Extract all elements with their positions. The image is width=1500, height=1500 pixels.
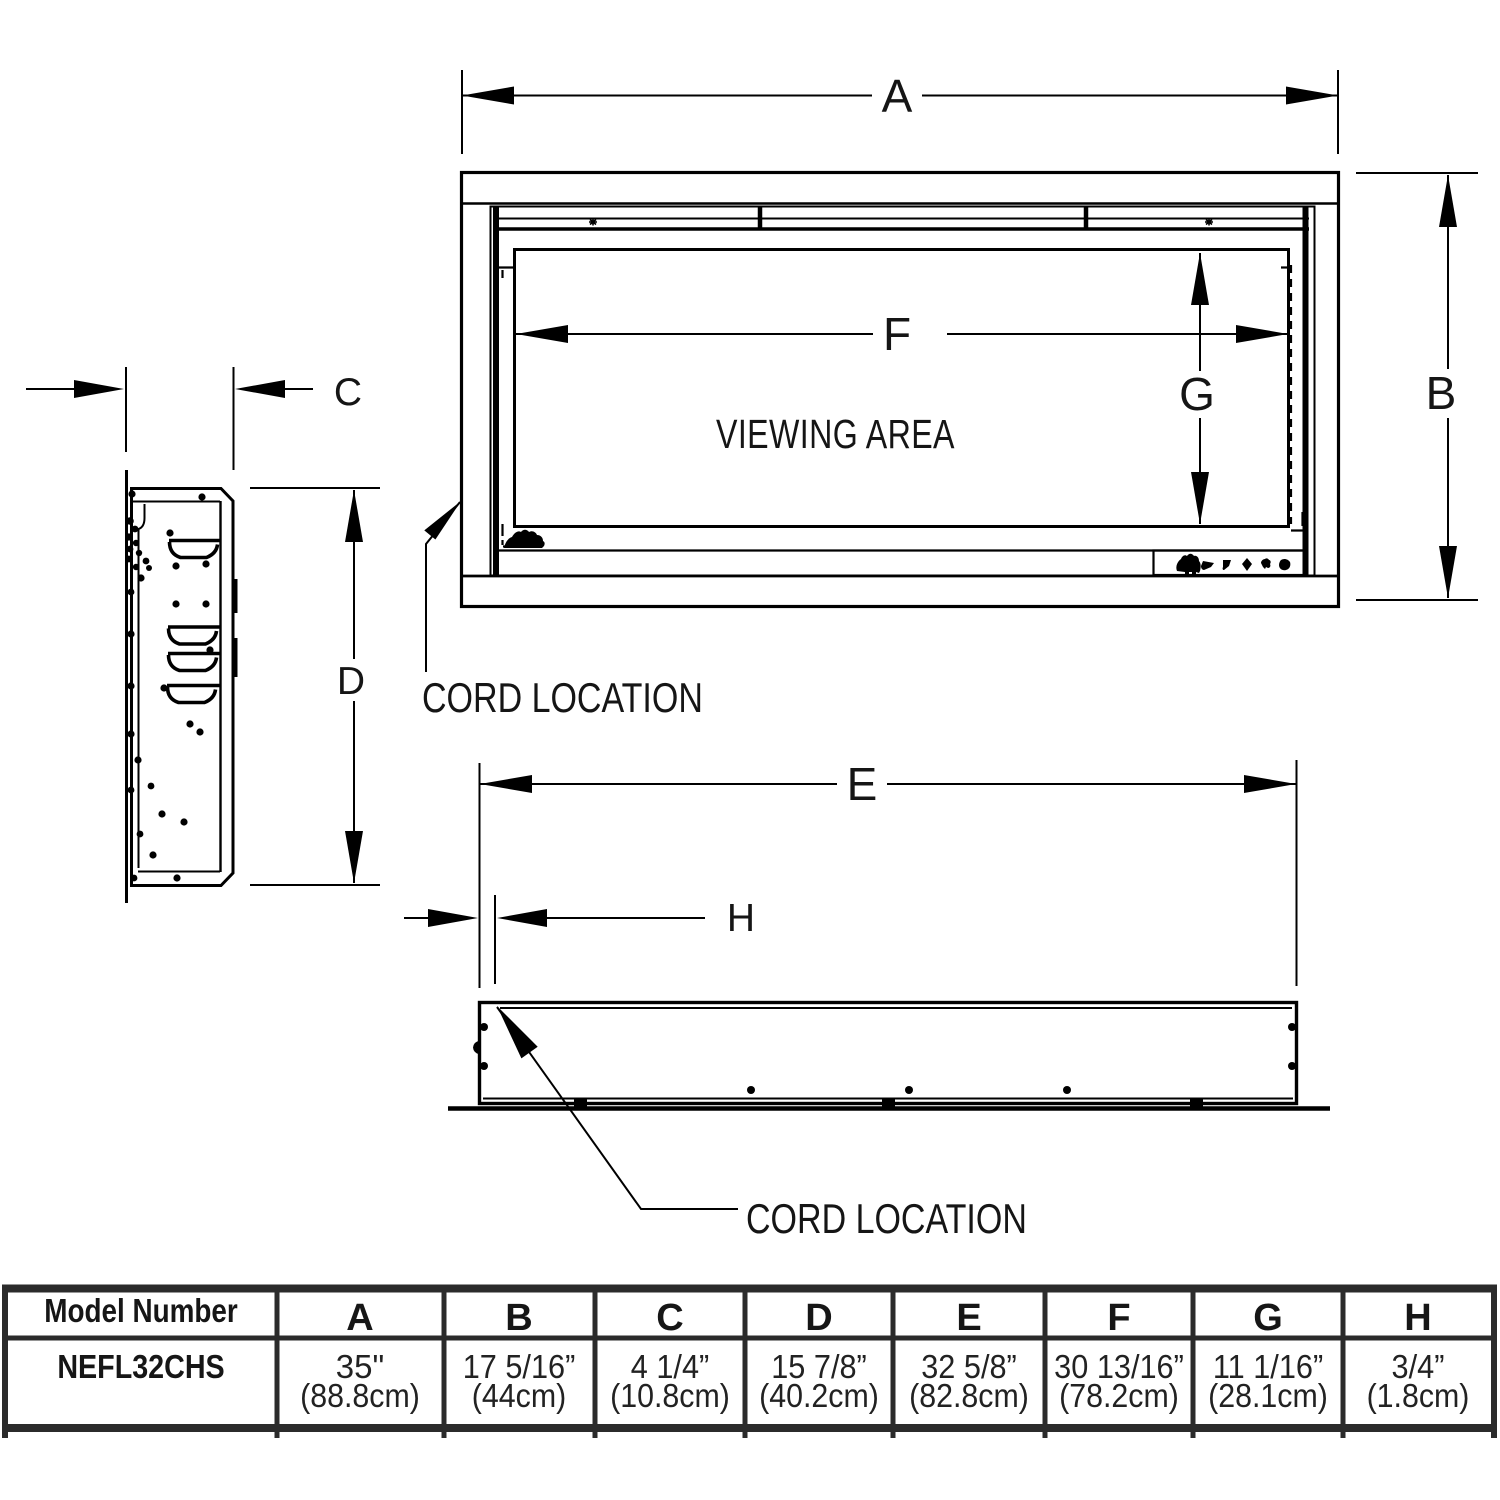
svg-text:(1.8cm): (1.8cm): [1367, 1377, 1470, 1414]
svg-text:C: C: [656, 1297, 683, 1339]
svg-text:E: E: [847, 758, 878, 810]
svg-text:A: A: [882, 70, 913, 122]
svg-text:H: H: [727, 897, 755, 940]
svg-text:B: B: [1426, 367, 1457, 419]
svg-text:(82.8cm): (82.8cm): [909, 1377, 1029, 1414]
svg-text:D: D: [337, 660, 365, 703]
svg-text:G: G: [1253, 1297, 1283, 1339]
svg-text:(40.2cm): (40.2cm): [759, 1377, 879, 1414]
svg-text:(44cm): (44cm): [472, 1377, 566, 1414]
svg-text:CORD LOCATION: CORD LOCATION: [746, 1196, 1027, 1243]
svg-text:(28.1cm): (28.1cm): [1208, 1377, 1328, 1414]
svg-text:(78.2cm): (78.2cm): [1059, 1377, 1179, 1414]
svg-text:D: D: [805, 1297, 832, 1339]
svg-text:F: F: [1107, 1297, 1130, 1339]
svg-text:(88.8cm): (88.8cm): [300, 1377, 420, 1414]
svg-text:G: G: [1179, 368, 1215, 420]
svg-text:C: C: [334, 371, 362, 414]
svg-text:(10.8cm): (10.8cm): [610, 1377, 730, 1414]
svg-text:F: F: [883, 308, 911, 360]
svg-text:H: H: [1404, 1297, 1431, 1339]
svg-text:NEFL32CHS: NEFL32CHS: [57, 1348, 224, 1385]
svg-text:E: E: [956, 1297, 981, 1339]
svg-text:Model Number: Model Number: [44, 1293, 238, 1330]
svg-text:A: A: [346, 1297, 373, 1339]
svg-text:B: B: [505, 1297, 532, 1339]
svg-text:VIEWING AREA: VIEWING AREA: [716, 411, 955, 457]
svg-text:CORD LOCATION: CORD LOCATION: [422, 675, 703, 722]
